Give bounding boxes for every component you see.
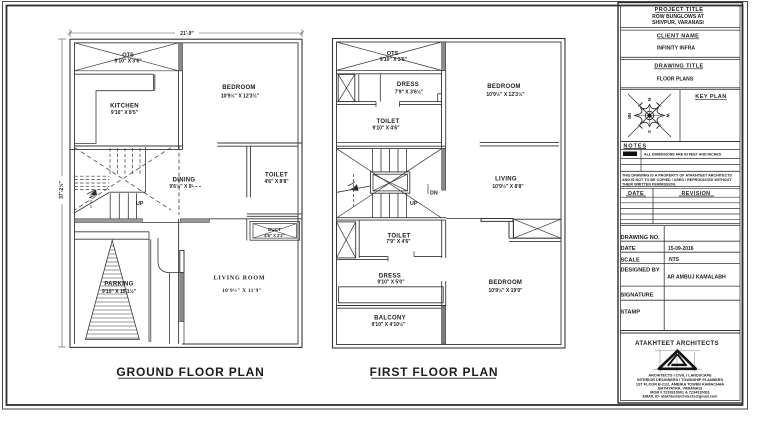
svg-text:10'9½" X 8'8": 10'9½" X 8'8" — [492, 183, 524, 190]
svg-text:SIGNATURE: SIGNATURE — [621, 293, 654, 299]
svg-text:DRAWING NO.: DRAWING NO. — [621, 235, 661, 241]
svg-text:TOILET: TOILET — [265, 173, 288, 179]
svg-text:NTS: NTS — [669, 257, 680, 263]
svg-text:PARKING: PARKING — [104, 282, 133, 288]
svg-text:NE: NE — [627, 113, 632, 119]
svg-text:10'9½" X 12'3½": 10'9½" X 12'3½" — [486, 91, 525, 98]
svg-text:THIS DRAWING IS A PROPERTY OF: THIS DRAWING IS A PROPERTY OF ATAKHTEET … — [622, 173, 732, 177]
svg-text:AND IS NOT TO BE COPIED / USE: AND IS NOT TO BE COPIED / USED / REPRODU… — [622, 178, 732, 182]
svg-text:10'9½" X 19'0": 10'9½" X 19'0" — [488, 287, 523, 294]
svg-text:UP: UP — [410, 201, 418, 207]
svg-text:BEDROOM: BEDROOM — [222, 85, 255, 91]
svg-text:BALCONY: BALCONY — [374, 315, 406, 321]
svg-text:15-09-2016: 15-09-2016 — [668, 246, 694, 252]
svg-text:N: N — [647, 98, 652, 101]
svg-text:ALL DIMENSIONS ARE IN FEET AND: ALL DIMENSIONS ARE IN FEET AND INCHES — [644, 153, 722, 157]
svg-text:9'10" X 15'1½": 9'10" X 15'1½" — [102, 288, 137, 295]
svg-text:21'-9": 21'-9" — [180, 31, 194, 37]
svg-text:SHIVPUR, VARANASI: SHIVPUR, VARANASI — [652, 20, 704, 26]
svg-text:DN: DN — [430, 191, 438, 197]
svg-text:BEDROOM: BEDROOM — [487, 84, 520, 90]
svg-text:9'10" X 4'6": 9'10" X 4'6" — [372, 126, 400, 132]
svg-text:9'10" X 8'5": 9'10" X 8'5" — [111, 110, 139, 116]
svg-text:FIRST FLOOR PLAN: FIRST FLOOR PLAN — [370, 365, 499, 379]
svg-text:INFINITY INFRA: INFINITY INFRA — [657, 46, 695, 52]
svg-text:UP: UP — [136, 201, 144, 207]
svg-text:DINING: DINING — [173, 178, 196, 184]
svg-text:TOILET: TOILET — [376, 119, 399, 125]
svg-text:4'6" X 2'2": 4'6" X 2'2" — [264, 233, 284, 238]
svg-text:9'10" X 4'10½": 9'10" X 4'10½" — [371, 321, 406, 328]
svg-text:EMAIL ID- atakhteetarchitect: EMAIL ID- atakhteetarchitects@gmail.com — [642, 395, 718, 399]
svg-text:GROUND FLOOR PLAN: GROUND FLOOR PLAN — [116, 365, 264, 379]
svg-text:LIVING ROOM: LIVING ROOM — [214, 276, 266, 282]
svg-text:ATAKHTEET ARCHITECTS: ATAKHTEET ARCHITECTS — [635, 340, 719, 347]
svg-text:9'10" X 3'6": 9'10" X 3'6" — [114, 58, 142, 64]
svg-text:KITCHEN: KITCHEN — [110, 104, 139, 110]
svg-text:SCALE: SCALE — [621, 258, 640, 264]
svg-text:10'9½" X 11'9": 10'9½" X 11'9" — [222, 287, 262, 294]
svg-text:STAMP: STAMP — [621, 310, 641, 316]
svg-text:DUCT: DUCT — [268, 227, 281, 232]
svg-text:S: S — [647, 130, 652, 133]
svg-text:37'-2½": 37'-2½" — [58, 181, 65, 199]
svg-text:9'6½" X 9': 9'6½" X 9' — [169, 183, 192, 190]
svg-text:FLOOR PLANS: FLOOR PLANS — [657, 77, 694, 83]
svg-text:7'9" X 4'6": 7'9" X 4'6" — [386, 239, 411, 245]
svg-text:THEIR WRITTEN PERMISSION.: THEIR WRITTEN PERMISSION. — [622, 182, 676, 186]
svg-text:DATE: DATE — [621, 246, 636, 252]
svg-text:LIVING: LIVING — [495, 177, 517, 183]
svg-text:4'6" X 8'8": 4'6" X 8'8" — [264, 179, 289, 185]
svg-text:AR AMBUJ KAMALABH: AR AMBUJ KAMALABH — [667, 275, 726, 281]
svg-text:7'9" X 3'6½": 7'9" X 3'6½" — [395, 89, 424, 96]
svg-text:10'9½" X 12'3½": 10'9½" X 12'3½" — [221, 93, 260, 100]
svg-text:9'10" X 5'0": 9'10" X 5'0" — [377, 279, 405, 285]
svg-text:9'10" X 3'6": 9'10" X 3'6" — [380, 57, 408, 63]
svg-text:BEDROOM: BEDROOM — [489, 280, 522, 286]
svg-text:DRESS: DRESS — [397, 82, 419, 88]
svg-text:DESIGNED BY: DESIGNED BY — [621, 268, 660, 274]
